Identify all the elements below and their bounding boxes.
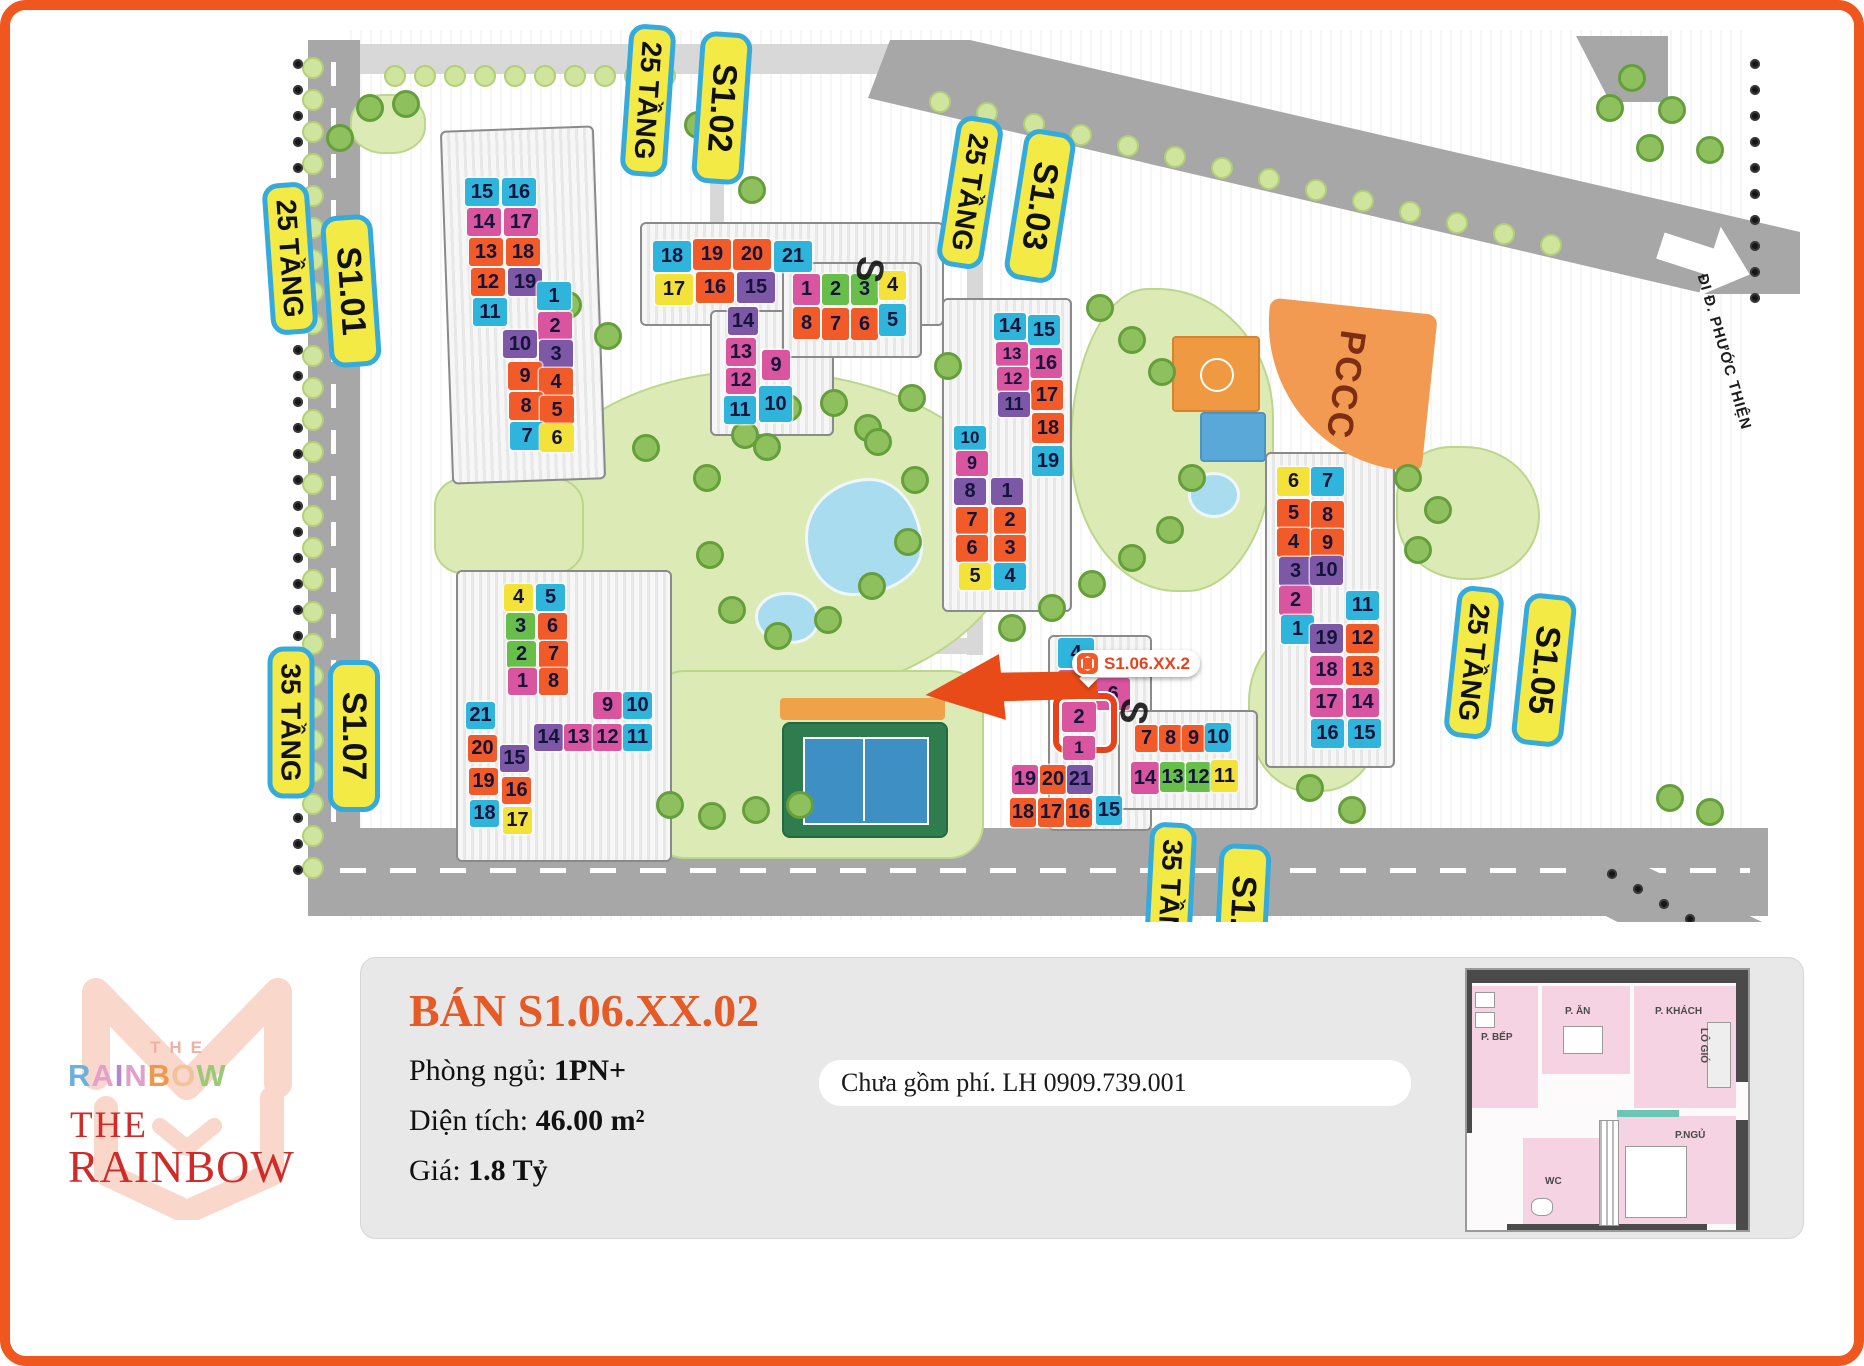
listing-title: BÁN S1.06.XX.02 [409,984,759,1037]
brand-logo: THE RAINBOW THE RAINBOW [62,958,312,1220]
detail-label-2: Giá: [409,1154,468,1187]
rainbow-letter-N: N [124,1058,147,1093]
tower-label-S101: S1.01 [320,213,382,368]
fp-label-dining: P. ĂN [1565,1006,1590,1017]
tower-label-S103: S1.03 [1002,127,1077,285]
rainbow-letter-A: A [91,1058,114,1093]
fp-label-kitchen: P. BẾP [1481,1032,1513,1043]
detail-label-0: Phòng ngủ: [409,1054,554,1087]
unit-marker[interactable]: S1.06.XX.2 [1072,650,1200,677]
fp-window-teal [1617,1110,1679,1117]
floors-label-35TNG: 35 TẦNG [1142,821,1197,922]
floors-label-25TNG: 25 TẦNG [261,181,318,336]
tower-label-S102: S1.02 [691,30,753,185]
logo-rainbow-red: RAINBOW [68,1140,295,1193]
rainbow-letter-B: B [148,1058,171,1093]
detail-row-1: Diện tích: 46.00 m² [409,1104,645,1138]
logo-the-small: THE [150,1038,211,1058]
floors-label-25TNG: 25 TẦNG [1442,584,1505,740]
building-letter-1: S [1109,695,1156,727]
tower-label-S107: S1.07 [328,660,380,812]
detail-value-1: 46.00 m² [536,1104,645,1137]
brand-marker-icon [1077,653,1098,674]
building-letter-0: S [845,253,892,285]
rainbow-letter-I: I [115,1058,125,1093]
tower-pill-layer: 25 TẦNGS1.0125 TẦNGS1.0225 TẦNGS1.0325 T… [10,10,1854,922]
tower-label-S105: S1.05 [1510,592,1578,749]
listing-page: PCCC 15161417131812191112103948576181920… [0,0,1864,1366]
rainbow-letter-R: R [68,1058,91,1093]
detail-row-0: Phòng ngủ: 1PN+ [409,1054,626,1088]
floorplan-thumbnail: P. BẾP P. ĂN P. KHÁCH LÔ GIÓ P.NGỦ WC [1465,968,1750,1232]
fp-label-loggia: LÔ GIÓ [1698,1028,1709,1063]
detail-row-2: Giá: 1.8 Tỷ [409,1154,548,1188]
logo-rainbow-colored: RAINBOW [68,1058,227,1094]
fp-label-bedroom: P.NGỦ [1675,1130,1705,1141]
tower-label-S106: S1.06 [1212,843,1272,922]
floors-label-25TNG: 25 TẦNG [619,23,676,178]
fp-label-living: P. KHÁCH [1655,1006,1702,1017]
contact-box[interactable]: Chưa gồm phí. LH 0909.739.001 [819,1060,1411,1106]
unit-marker-label: S1.06.XX.2 [1104,654,1190,674]
masterplan-map[interactable]: PCCC 15161417131812191112103948576181920… [10,10,1854,922]
detail-value-2: 1.8 Tỷ [468,1154,547,1187]
fp-label-wc: WC [1545,1176,1562,1187]
fp-wardrobe [1599,1120,1619,1226]
rainbow-letter-O: O [171,1058,196,1093]
floors-label-25TNG: 25 TẦNG [934,113,1004,270]
rainbow-letter-W: W [196,1058,226,1093]
detail-value-0: 1PN+ [554,1054,626,1087]
floors-label-35TNG: 35 TẦNG [267,646,314,798]
detail-label-1: Diện tích: [409,1104,536,1137]
